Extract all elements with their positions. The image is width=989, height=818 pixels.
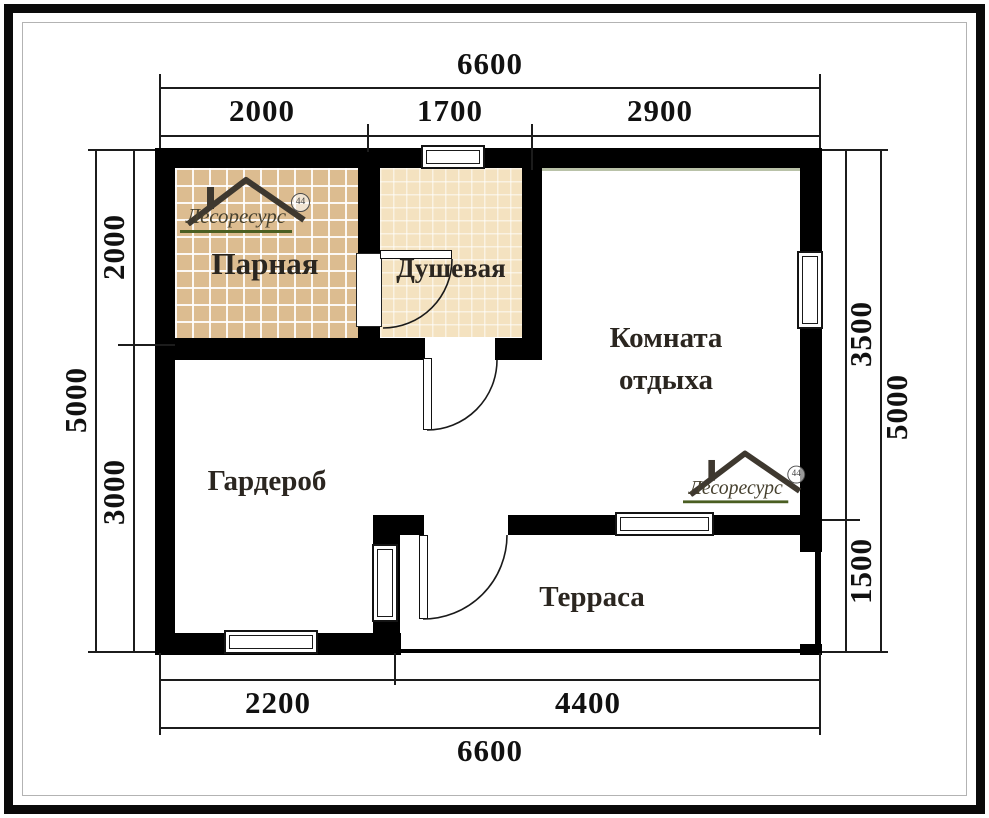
dim-line-top-total bbox=[160, 87, 820, 89]
ext-bottom-right bbox=[819, 653, 821, 735]
window-top-wall bbox=[421, 145, 485, 169]
logo-text: Лесоресурс bbox=[683, 476, 788, 503]
dim-right-seg1: 3500 bbox=[844, 269, 878, 399]
dim-left-total: 5000 bbox=[59, 335, 93, 465]
window-terrace-left bbox=[372, 544, 398, 622]
ext-right-bottom bbox=[822, 651, 888, 653]
dim-top-total: 6600 bbox=[420, 46, 560, 82]
dim-bottom-seg2: 4400 bbox=[518, 685, 658, 721]
ext-bottom-mid bbox=[394, 653, 396, 685]
floor-plan-canvas: 6600 2000 1700 2900 2200 4400 6600 5000 … bbox=[0, 0, 989, 818]
logo-lesoresurs-komnata: Лесоресурс 44 bbox=[683, 444, 805, 519]
dim-line-left-segments bbox=[133, 150, 135, 652]
terrace-right-edge bbox=[815, 552, 821, 653]
wall-top bbox=[155, 148, 822, 168]
logo-badge: 44 bbox=[291, 193, 310, 212]
door-leaf-terrace bbox=[419, 535, 428, 619]
logo-badge: 44 bbox=[787, 466, 805, 484]
room-label-komnata-line1: Комната bbox=[556, 318, 776, 358]
room-label-komnata-line2: отдыха bbox=[556, 360, 776, 400]
terrace-bottom-edge bbox=[400, 649, 821, 653]
dim-top-seg3: 2900 bbox=[590, 93, 730, 129]
ext-left-mid bbox=[118, 344, 175, 346]
ext-left-bottom bbox=[88, 651, 155, 653]
window-garderob bbox=[224, 630, 318, 654]
room-label-garderob: Гардероб bbox=[157, 461, 377, 501]
dim-line-top-segments bbox=[160, 135, 820, 137]
dim-right-seg2: 1500 bbox=[844, 506, 878, 636]
ext-top-right bbox=[819, 74, 821, 148]
logo-lesoresurs-parnaya: Лесоресурс 44 bbox=[180, 170, 310, 250]
room-label-terrasa: Терраса bbox=[482, 577, 702, 617]
dim-bottom-total: 6600 bbox=[420, 733, 560, 769]
window-right-wall bbox=[797, 251, 823, 329]
ext-right-top bbox=[822, 149, 888, 151]
ext-top-mid2 bbox=[531, 124, 533, 170]
dim-line-bottom-segments bbox=[160, 679, 820, 681]
dim-right-total: 5000 bbox=[880, 342, 914, 472]
dim-line-bottom-total bbox=[160, 727, 820, 729]
wall-accent-strip bbox=[542, 168, 800, 171]
wall-left bbox=[155, 148, 175, 655]
dim-left-seg2: 3000 bbox=[97, 427, 131, 557]
ext-top-left bbox=[159, 74, 161, 148]
wall-below-parnaya bbox=[175, 338, 425, 360]
ext-top-mid1 bbox=[367, 124, 369, 152]
dim-top-seg2: 1700 bbox=[380, 93, 520, 129]
logo-text: Лесоресурс bbox=[180, 204, 292, 233]
dim-top-seg1: 2000 bbox=[192, 93, 332, 129]
ext-bottom-left bbox=[159, 653, 161, 735]
door-leaf-dushevaya bbox=[423, 358, 432, 430]
wall-terrace-stub bbox=[373, 515, 424, 535]
ext-left-top bbox=[88, 149, 155, 151]
room-label-dushevaya: Душевая bbox=[341, 248, 561, 288]
dim-bottom-seg1: 2200 bbox=[208, 685, 348, 721]
dim-left-seg1: 2000 bbox=[97, 182, 131, 312]
